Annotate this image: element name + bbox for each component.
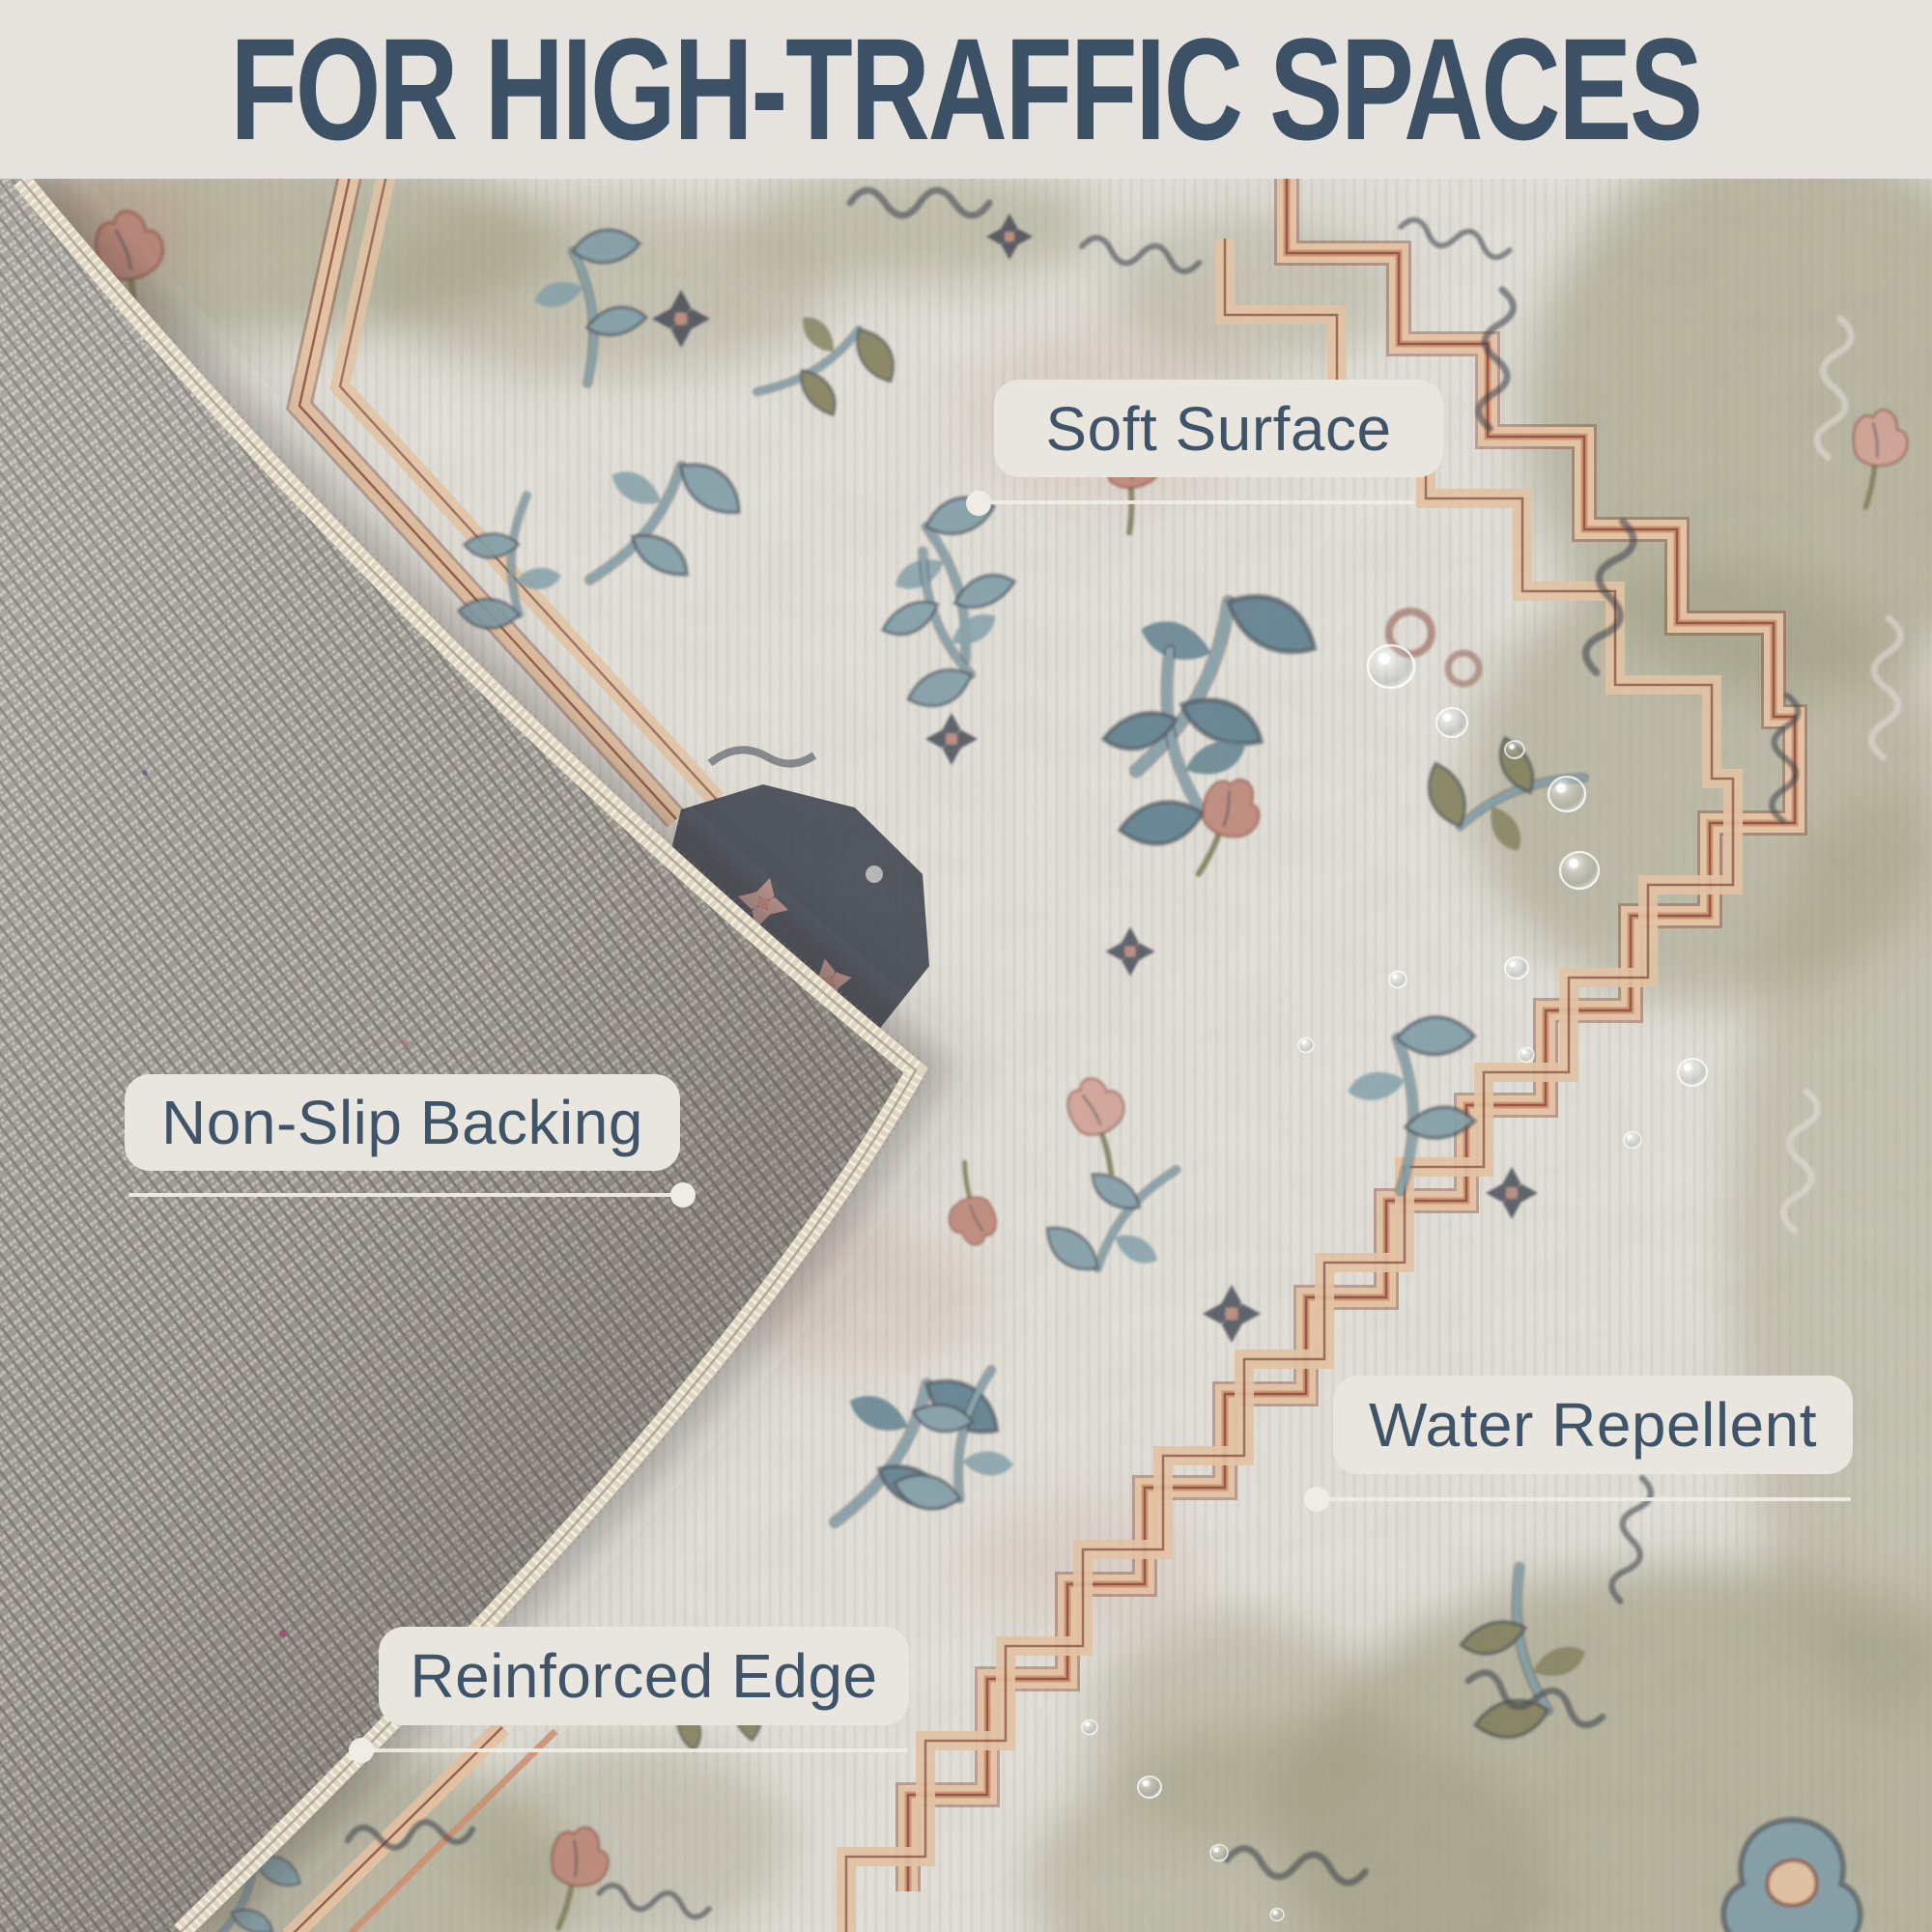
callout-dot — [670, 1182, 696, 1207]
rug-photo — [0, 179, 1932, 1932]
callout-dot — [1304, 1487, 1329, 1512]
callout-label: Non-Slip Backing — [125, 1074, 680, 1171]
callout-leader-line — [990, 500, 1415, 504]
header-banner: FOR HIGH-TRAFFIC SPACES — [0, 0, 1932, 179]
callout-leader-line — [128, 1193, 680, 1197]
callout-label: Water Repellent — [1333, 1376, 1853, 1474]
rug-feature-infographic: FOR HIGH-TRAFFIC SPACES — [0, 0, 1932, 1932]
callout-leader-line — [1327, 1497, 1851, 1501]
callout-dot — [966, 491, 991, 516]
page-title: FOR HIGH-TRAFFIC SPACES — [231, 0, 1701, 179]
callout-dot — [349, 1738, 374, 1763]
callout-leader-line — [373, 1748, 908, 1752]
rug-photo-illustration — [0, 179, 1932, 1932]
callout-label: Soft Surface — [994, 380, 1443, 477]
callout-label: Reinforced Edge — [379, 1627, 909, 1725]
